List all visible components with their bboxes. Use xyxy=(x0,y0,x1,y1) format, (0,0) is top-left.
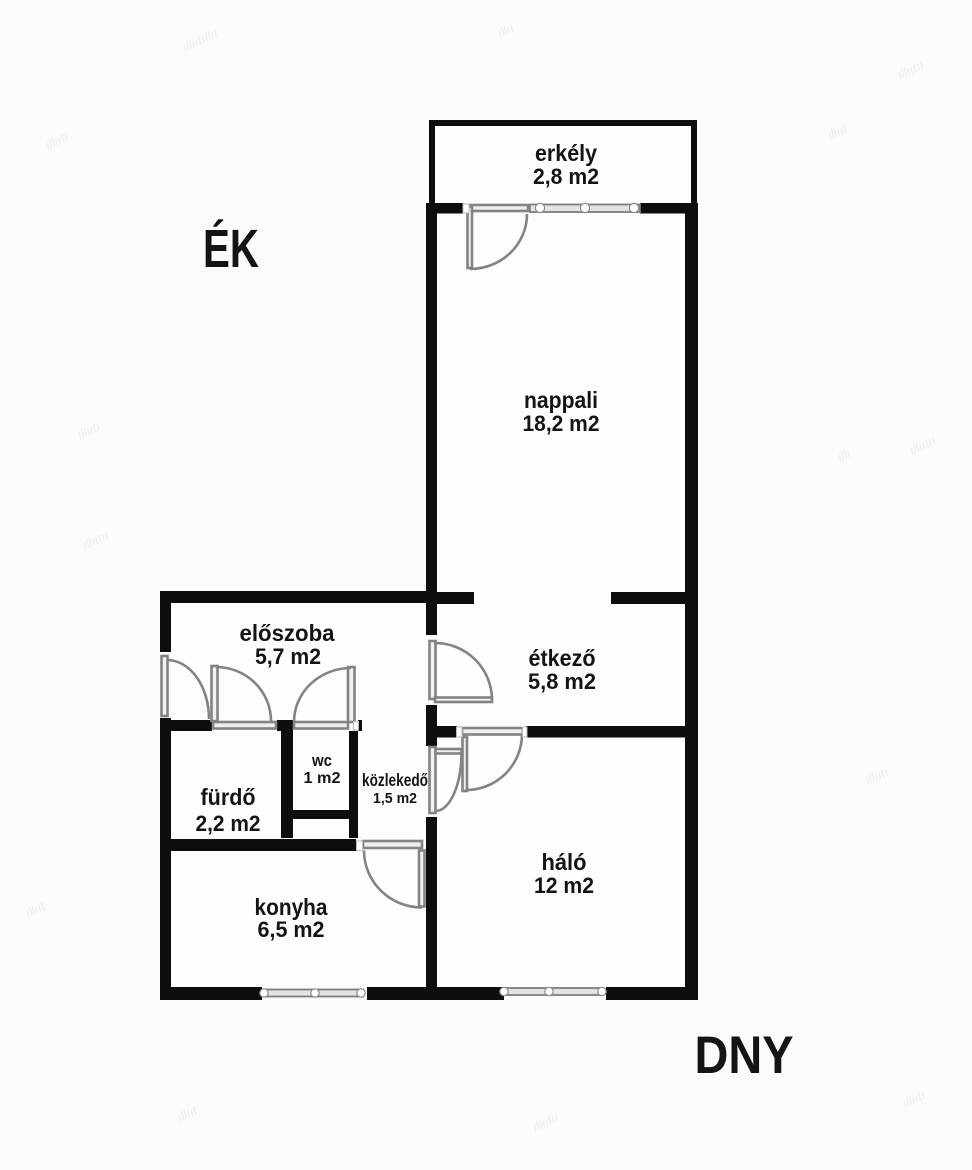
svg-text:2,8 m2: 2,8 m2 xyxy=(533,164,599,189)
svg-text:ıllııtıı: ıllııtıı xyxy=(80,527,112,553)
svg-text:fürdő: fürdő xyxy=(201,784,256,810)
svg-text:ıllııtıı: ıllııtıı xyxy=(907,432,939,458)
svg-text:ıllııtı: ıllııtı xyxy=(863,764,891,788)
svg-text:6,5 m2: 6,5 m2 xyxy=(258,917,325,942)
svg-text:wc: wc xyxy=(311,751,332,770)
svg-text:közlekedő: közlekedő xyxy=(362,770,428,790)
svg-text:ıllııtı: ıllııtı xyxy=(43,129,71,153)
svg-text:1 m2: 1 m2 xyxy=(304,770,341,787)
svg-text:2,2 m2: 2,2 m2 xyxy=(196,811,261,836)
svg-text:ıllııtıı: ıllııtıı xyxy=(530,1109,562,1135)
svg-text:ıllıı: ıllıı xyxy=(495,20,517,41)
svg-text:12 m2: 12 m2 xyxy=(534,873,594,898)
svg-text:5,7 m2: 5,7 m2 xyxy=(255,644,321,669)
svg-text:DNY: DNY xyxy=(695,1026,794,1085)
svg-text:étkező: étkező xyxy=(529,645,596,671)
svg-text:erkély: erkély xyxy=(535,140,597,166)
svg-text:ıllııtı: ıllııtı xyxy=(900,1087,928,1111)
svg-text:18,2 m2: 18,2 m2 xyxy=(523,411,600,436)
svg-text:háló: háló xyxy=(542,849,587,875)
svg-text:1,5 m2: 1,5 m2 xyxy=(373,790,417,807)
svg-text:ÉK: ÉK xyxy=(203,219,259,279)
svg-text:ıllııtıı: ıllııtıı xyxy=(895,57,927,83)
svg-text:ıllııtıılıı: ıllııtıılıı xyxy=(180,25,221,55)
svg-text:ıllı: ıllı xyxy=(835,445,854,464)
svg-text:ıllııt: ıllııt xyxy=(825,120,851,143)
svg-text:ıllııt: ıllııt xyxy=(23,898,49,921)
svg-text:5,8 m2: 5,8 m2 xyxy=(528,669,596,694)
svg-text:ıllııtı: ıllııtı xyxy=(75,419,103,443)
svg-text:előszoba: előszoba xyxy=(240,620,335,646)
svg-text:ıllııt: ıllııt xyxy=(175,1102,201,1125)
svg-text:nappali: nappali xyxy=(524,387,598,413)
